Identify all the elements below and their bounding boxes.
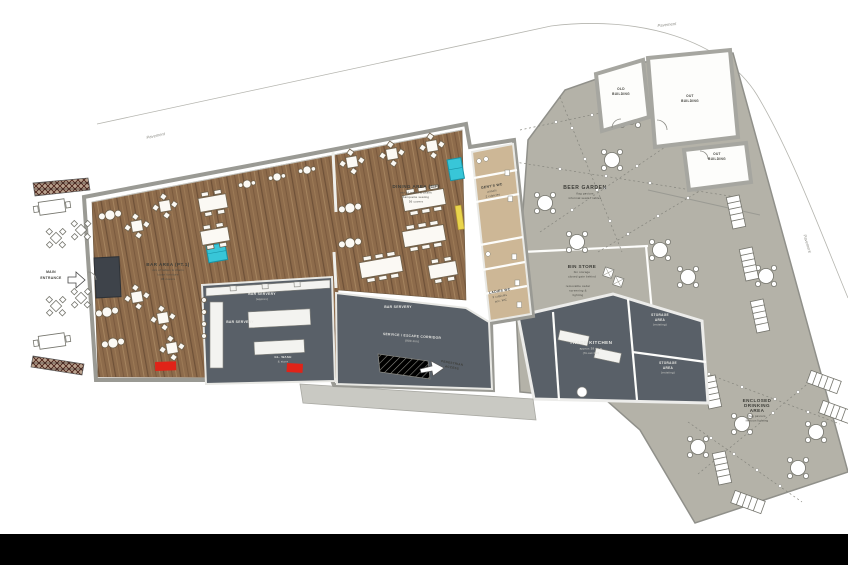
- svg-text:approx 38 sq.m: approx 38 sq.m: [580, 347, 603, 351]
- svg-text:mix of tables & chairs: mix of tables & chairs: [400, 191, 432, 195]
- beer-garden-label: BEER GARDEN: [563, 185, 607, 191]
- svg-text:festoon lighting: festoon lighting: [746, 419, 769, 423]
- street-label-pavement-ne: Pavement: [657, 21, 677, 28]
- svg-text:AREA: AREA: [663, 366, 674, 370]
- bin-store-label: BIN STORE: [568, 264, 597, 269]
- glass-wash-label: GL. WASH: [274, 355, 291, 359]
- svg-text:BUILDING: BUILDING: [681, 99, 699, 103]
- floor-plan-canvas: Pavement Pavement Pavement: [0, 0, 848, 565]
- svg-text:56 covers: 56 covers: [409, 200, 424, 204]
- svg-text:38 covers: 38 covers: [161, 277, 176, 281]
- street-label-pavement-east: Pavement: [802, 234, 812, 254]
- bar-servery-label-3: BAR SERVERY: [226, 320, 254, 324]
- fire-exit-mat-1: [155, 361, 176, 371]
- svg-text:screening &: screening &: [569, 289, 586, 293]
- dining-area-label: DINING AREA (GF): [392, 184, 439, 189]
- svg-text:(approx): (approx): [256, 297, 268, 301]
- svg-text:BUILDING: BUILDING: [708, 157, 726, 161]
- svg-text:removable cedar: removable cedar: [566, 284, 591, 288]
- storage-area-1-label: STORAGE: [651, 313, 669, 317]
- trade-kitchen-label: TRADE KITCHEN: [570, 340, 613, 345]
- svg-text:(existing): (existing): [653, 323, 667, 327]
- bar-area-label: BAR AREA (PT.1): [146, 262, 190, 267]
- svg-text:banquette seating: banquette seating: [403, 195, 430, 199]
- bar-servery-label-2: BAR SERVERY: [384, 305, 412, 309]
- svg-text:AREA: AREA: [655, 318, 666, 322]
- svg-text:AREA: AREA: [750, 408, 765, 413]
- old-building-label-1: OLD: [617, 87, 625, 91]
- floor-plan-svg: Pavement Pavement Pavement: [0, 0, 848, 565]
- svg-text:flag paviors: flag paviors: [576, 192, 594, 196]
- storage-area-2-label: STORAGE: [659, 361, 677, 365]
- svg-text:BUILDING: BUILDING: [612, 92, 630, 96]
- svg-text:informal seats / tables: informal seats / tables: [569, 196, 602, 200]
- entrance-arrow: [68, 272, 85, 288]
- bar-servery-label-1: BAR SERVERY: [248, 292, 276, 296]
- out-building-2-label-1: OUT: [713, 152, 721, 156]
- svg-text:& store: & store: [278, 360, 289, 364]
- street-label-pavement-top: Pavement: [146, 131, 166, 140]
- svg-text:lighting: lighting: [573, 293, 584, 297]
- svg-text:loose furniture: loose furniture: [157, 273, 179, 277]
- footer-black-bar: [0, 534, 848, 565]
- svg-text:(existing): (existing): [661, 371, 675, 375]
- main-entrance-label-1: MAIN: [46, 270, 56, 274]
- fire-exit-mat-2: [287, 363, 303, 373]
- svg-text:closed gate behind: closed gate behind: [568, 275, 596, 279]
- svg-text:bin storage: bin storage: [574, 270, 591, 274]
- svg-text:(fit-out tbc): (fit-out tbc): [583, 351, 599, 355]
- svg-text:flag paviors: flag paviors: [748, 414, 766, 418]
- entrance-lobby: [94, 257, 121, 298]
- out-building-1-label-1: OUT: [686, 94, 694, 98]
- svg-text:mix of tables & chairs: mix of tables & chairs: [152, 268, 184, 272]
- service-station-cyan-2: [447, 158, 464, 181]
- main-entrance-label-2: ENTRANCE: [40, 276, 62, 280]
